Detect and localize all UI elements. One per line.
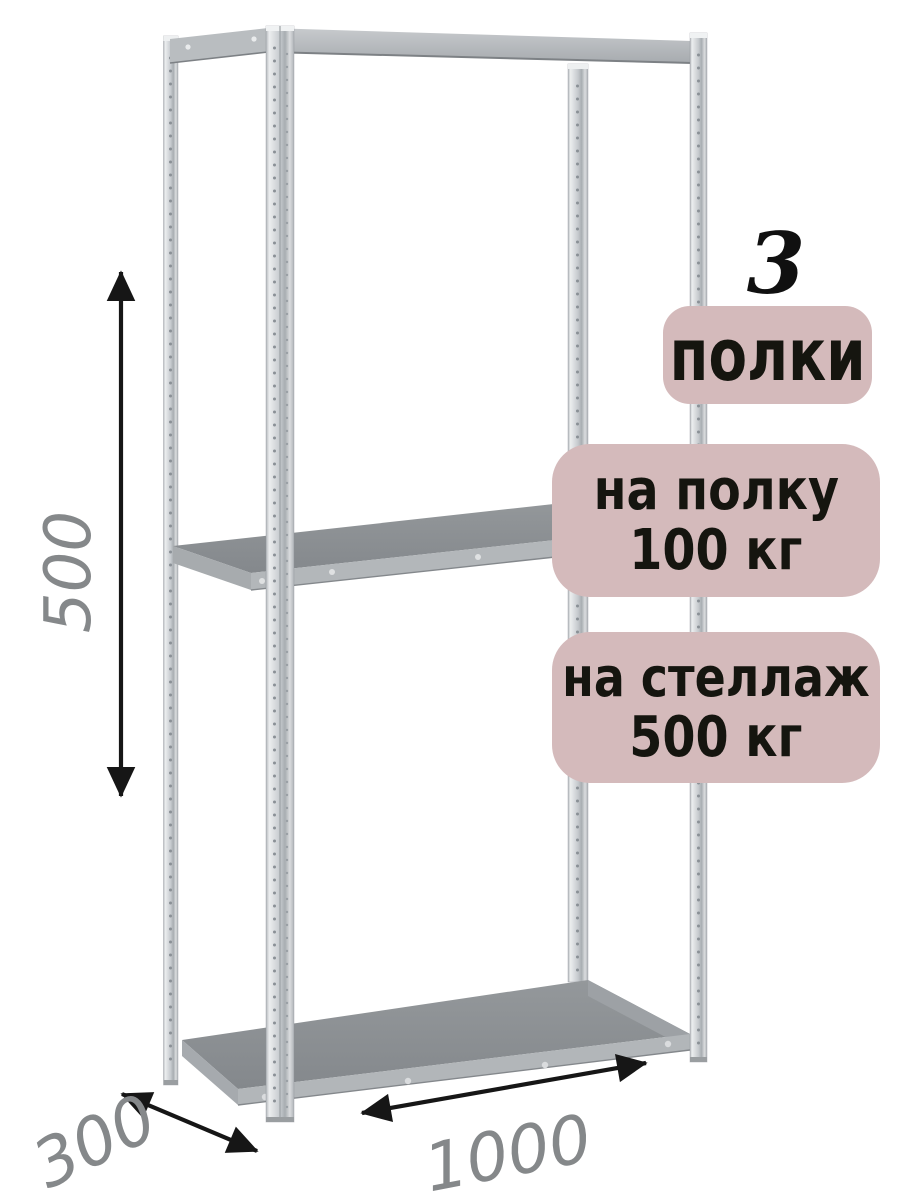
badge-shelf-load-line2: 100 кг <box>629 521 802 581</box>
badge-shelf-load: на полку 100 кг <box>552 444 880 597</box>
badge-rack-load-line2: 500 кг <box>629 708 802 768</box>
product-image-canvas: 3 полки на полку 100 кг на стеллаж 500 к… <box>0 0 900 1200</box>
shelf-top <box>170 28 692 63</box>
badge-rack-load-line1: на стеллаж <box>562 648 870 708</box>
badge-shelf-load-line1: на полку <box>593 461 838 521</box>
badge-rack-load: на стеллаж 500 кг <box>552 632 880 783</box>
shelving-rack-illustration <box>0 0 900 1200</box>
badge-shelf-count-label: полки <box>670 306 866 404</box>
shelf-bottom <box>182 980 690 1105</box>
height-dimension-label: 500 <box>34 487 104 657</box>
shelf-count-number: 3 <box>726 212 826 316</box>
upright-post-front-left <box>266 26 294 1122</box>
badge-shelf-count: полки <box>663 306 872 404</box>
